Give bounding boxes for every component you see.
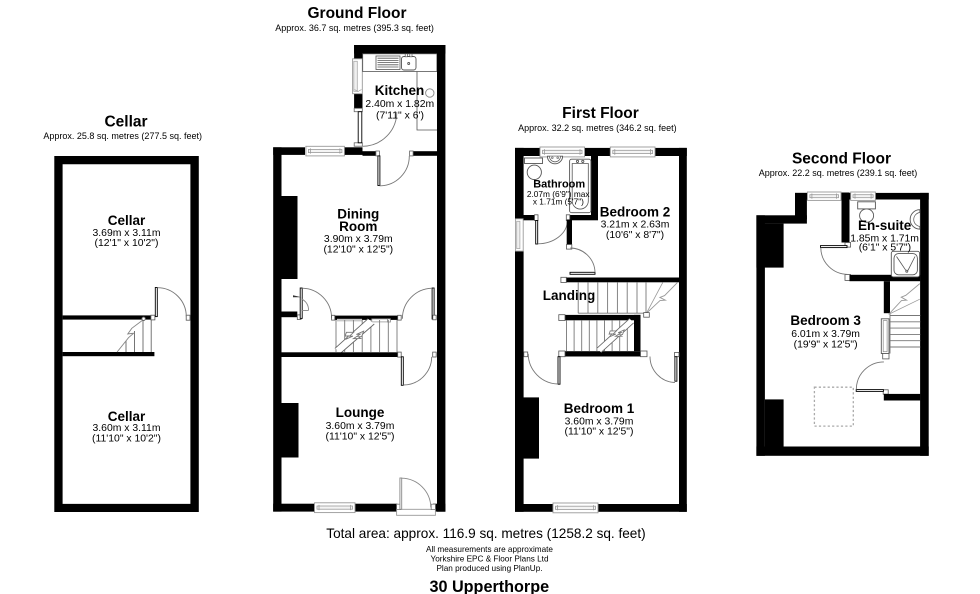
svg-text:(11'10" x 12'5"): (11'10" x 12'5") [326,432,395,443]
svg-text:Approx. 32.2 sq. metres (346.2: Approx. 32.2 sq. metres (346.2 sq. feet) [518,123,677,133]
svg-text:(11'10" x 10'2"): (11'10" x 10'2") [92,434,161,445]
svg-text:2.40m x 1.82m: 2.40m x 1.82m [365,99,434,110]
svg-text:Bedroom 2: Bedroom 2 [600,204,671,219]
svg-text:(11'10" x 12'5"): (11'10" x 12'5") [565,427,634,438]
svg-text:Approx. 25.8 sq. metres (277.5: Approx. 25.8 sq. metres (277.5 sq. feet) [43,131,202,141]
svg-text:Approx. 22.2 sq. metres (239.1: Approx. 22.2 sq. metres (239.1 sq. feet) [759,168,918,178]
svg-text:Room: Room [339,219,377,234]
svg-text:3.21m x 2.63m: 3.21m x 2.63m [601,220,670,231]
svg-text:3.60m x 3.79m: 3.60m x 3.79m [326,421,395,432]
svg-text:Lounge: Lounge [336,405,385,420]
svg-text:First Floor: First Floor [562,105,639,122]
svg-text:En-suite: En-suite [858,218,912,233]
svg-text:(12'1" x 10'2"): (12'1" x 10'2") [95,238,159,249]
svg-text:(12'10" x 12'5"): (12'10" x 12'5") [323,244,393,255]
svg-text:Plan produced using PlanUp.: Plan produced using PlanUp. [436,564,542,573]
svg-text:Ground Floor: Ground Floor [307,5,406,22]
svg-text:Cellar: Cellar [108,213,146,228]
svg-text:(7'11" x 6'): (7'11" x 6') [376,110,424,121]
svg-text:Bedroom 1: Bedroom 1 [564,401,635,416]
svg-text:(19'9" x 12'5"): (19'9" x 12'5") [794,340,858,351]
svg-text:Approx. 36.7 sq. metres (395.3: Approx. 36.7 sq. metres (395.3 sq. feet) [275,23,434,33]
svg-text:x 1.71m (5'7"): x 1.71m (5'7") [533,197,584,207]
svg-text:Bedroom 3: Bedroom 3 [790,313,861,328]
svg-text:(10'6" x 8'7"): (10'6" x 8'7") [606,230,664,241]
svg-text:Landing: Landing [543,288,596,303]
svg-text:All measurements are approxima: All measurements are approximate [426,545,553,554]
svg-text:Kitchen: Kitchen [375,83,425,98]
svg-text:Second Floor: Second Floor [792,150,891,167]
svg-text:Cellar: Cellar [104,114,147,131]
svg-text:(6'1" x 5'7"): (6'1" x 5'7") [859,243,911,254]
svg-text:30 Upperthorpe: 30 Upperthorpe [429,578,549,594]
svg-text:Yorkshire EPC & Floor Plans L: Yorkshire EPC & Floor Plans Ltd [430,555,548,564]
svg-text:Total area: approx. 116.9 sq.: Total area: approx. 116.9 sq. metres (12… [326,526,645,541]
svg-text:Cellar: Cellar [108,409,146,424]
svg-text:6.01m x 3.79m: 6.01m x 3.79m [791,329,860,340]
